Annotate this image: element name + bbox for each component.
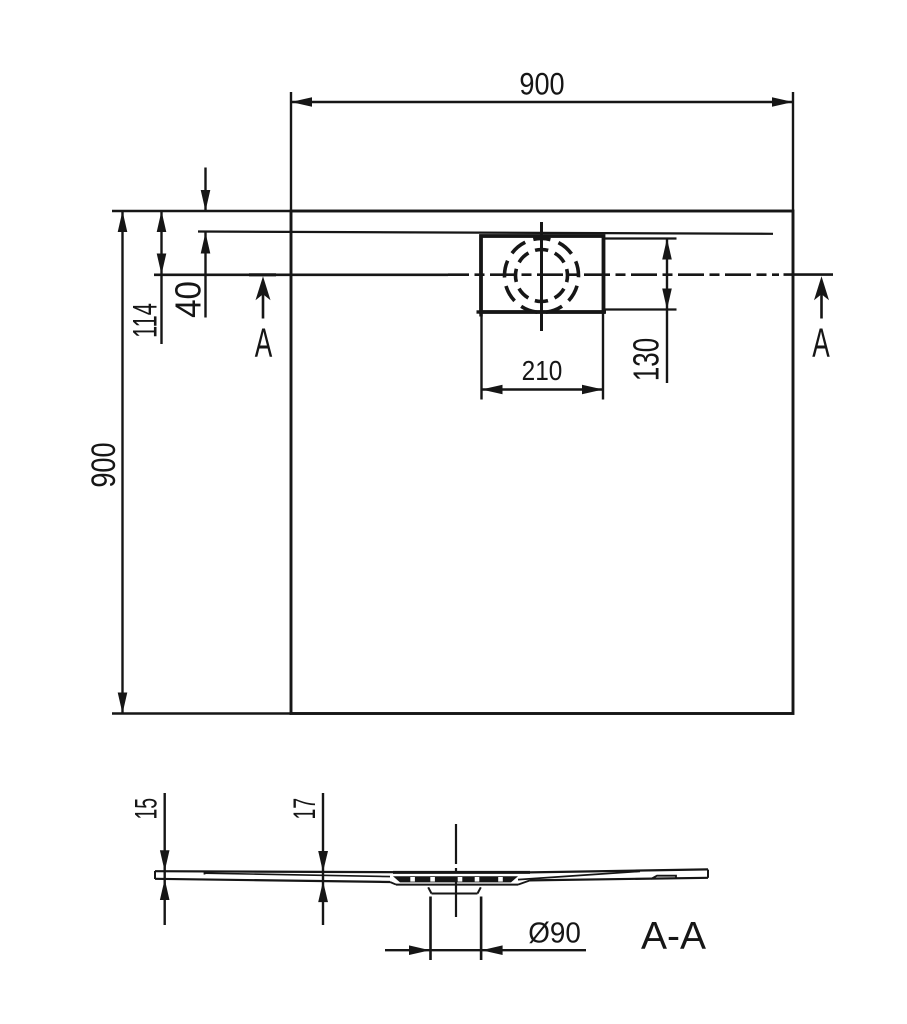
svg-text:A-A: A-A — [641, 915, 706, 958]
svg-text:130: 130 — [626, 338, 666, 381]
svg-text:210: 210 — [522, 354, 563, 386]
svg-text:A: A — [812, 321, 830, 366]
svg-text:Ø90: Ø90 — [528, 917, 581, 950]
svg-text:900: 900 — [519, 67, 564, 102]
svg-text:40: 40 — [169, 281, 209, 318]
svg-text:17: 17 — [286, 798, 322, 820]
svg-text:A: A — [255, 321, 273, 366]
svg-text:15: 15 — [128, 798, 164, 820]
svg-text:114: 114 — [127, 303, 165, 338]
svg-text:900: 900 — [84, 442, 123, 487]
